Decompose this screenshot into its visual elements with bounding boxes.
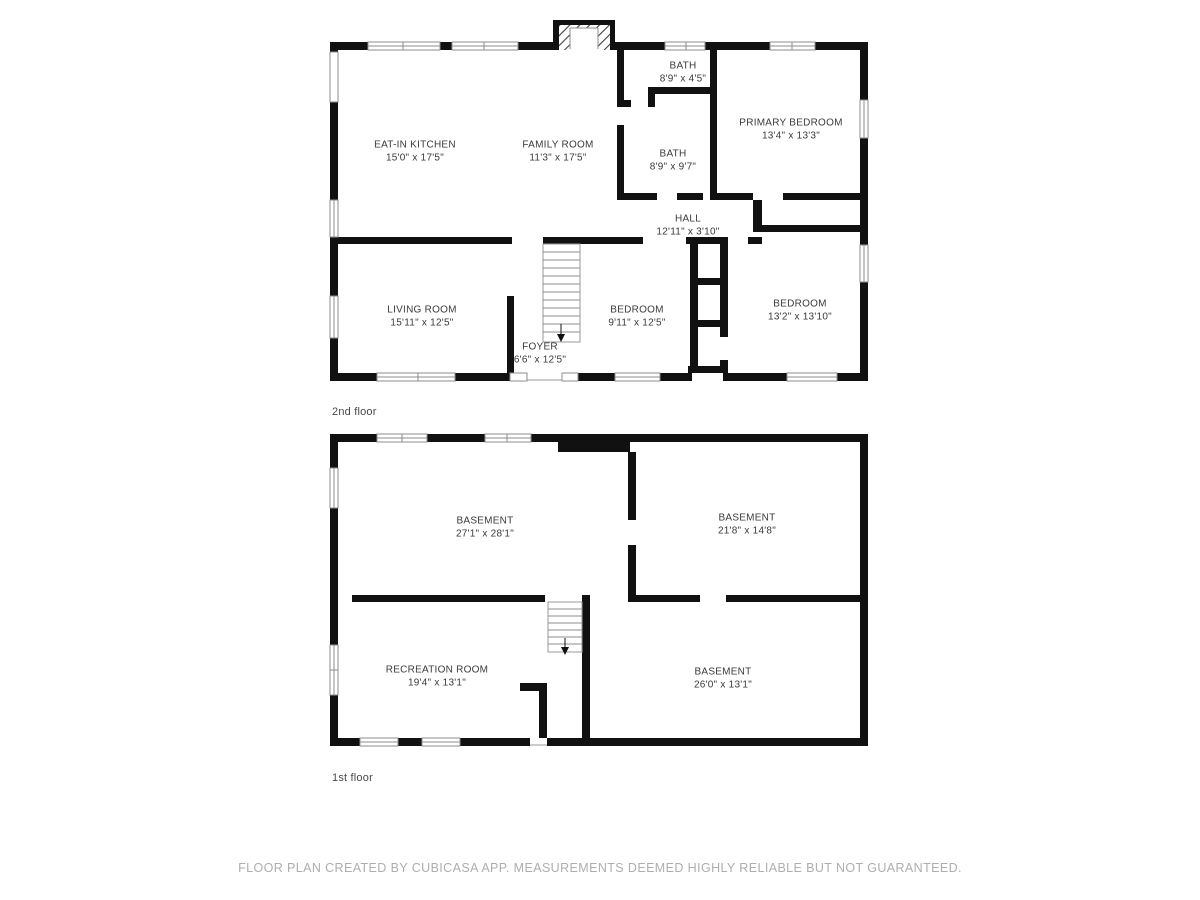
- room-dimensions: 15'0" x 17'5": [374, 152, 456, 165]
- room-label-foyer: FOYER6'6" x 12'5": [514, 342, 566, 367]
- room-label-recreation-room: RECREATION ROOM19'4" x 13'1": [386, 665, 488, 690]
- room-name: EAT-IN KITCHEN: [374, 140, 456, 153]
- staircase-lower: [548, 602, 582, 655]
- fireplace-chimney: [553, 20, 615, 50]
- room-dimensions: 13'2" x 13'10": [768, 311, 832, 324]
- room-label-bedroom: BEDROOM13'2" x 13'10": [768, 299, 832, 324]
- floor-2-label: 2nd floor: [332, 406, 377, 418]
- room-name: FAMILY ROOM: [522, 140, 593, 153]
- room-name: BASEMENT: [694, 667, 752, 680]
- room-name: BASEMENT: [718, 513, 776, 526]
- room-dimensions: 15'11" x 12'5": [387, 317, 456, 330]
- room-name: LIVING ROOM: [387, 305, 456, 318]
- room-name: BATH: [660, 61, 706, 74]
- floor-1-exterior-walls: [330, 434, 868, 746]
- nook-door-opening: [530, 738, 547, 746]
- floor-1-interior-walls: [352, 452, 864, 738]
- room-name: BEDROOM: [608, 305, 665, 318]
- room-dimensions: 19'4" x 13'1": [386, 677, 488, 690]
- room-label-basement: BASEMENT21'8" x 14'8": [718, 513, 776, 538]
- disclaimer-text: FLOOR PLAN CREATED BY CUBICASA APP. MEAS…: [0, 861, 1200, 875]
- entry-door-opening: [527, 373, 562, 381]
- room-dimensions: 9'11" x 12'5": [608, 317, 665, 330]
- room-label-basement: BASEMENT27'1" x 28'1": [456, 516, 514, 541]
- floor-1-window-mullions: [330, 434, 531, 742]
- floor-plan-canvas: EAT-IN KITCHEN15'0" x 17'5"FAMILY ROOM11…: [0, 0, 1200, 900]
- room-dimensions: 26'0" x 13'1": [694, 679, 752, 692]
- floor-1-plan: [330, 434, 868, 746]
- room-name: BATH: [650, 149, 696, 162]
- wall-jog-gap: [692, 373, 723, 381]
- staircase-upper: [543, 244, 580, 342]
- room-dimensions: 8'9" x 9'7": [650, 161, 696, 174]
- room-label-eat-in-kitchen: EAT-IN KITCHEN15'0" x 17'5": [374, 140, 456, 165]
- floor-2-window-mullions: [334, 42, 864, 381]
- floor-1-label: 1st floor: [332, 772, 373, 784]
- room-name: RECREATION ROOM: [386, 665, 488, 678]
- room-dimensions: 11'3" x 17'5": [522, 152, 593, 165]
- room-dimensions: 13'4" x 13'3": [739, 130, 842, 143]
- room-name: FOYER: [514, 342, 566, 355]
- floor-2-windows: [330, 42, 868, 381]
- room-label-bath: BATH8'9" x 4'5": [660, 61, 706, 86]
- room-name: PRIMARY BEDROOM: [739, 118, 842, 131]
- room-dimensions: 21'8" x 14'8": [718, 525, 776, 538]
- room-label-primary-bedroom: PRIMARY BEDROOM13'4" x 13'3": [739, 118, 842, 143]
- room-name: BEDROOM: [768, 299, 832, 312]
- room-name: BASEMENT: [456, 516, 514, 529]
- room-label-bedroom: BEDROOM9'11" x 12'5": [608, 305, 665, 330]
- room-dimensions: 27'1" x 28'1": [456, 528, 514, 541]
- room-dimensions: 8'9" x 4'5": [660, 73, 706, 86]
- room-dimensions: 12'11" x 3'10": [656, 226, 719, 239]
- room-label-living-room: LIVING ROOM15'11" x 12'5": [387, 305, 456, 330]
- room-label-bath: BATH8'9" x 9'7": [650, 149, 696, 174]
- room-label-basement: BASEMENT26'0" x 13'1": [694, 667, 752, 692]
- room-label-family-room: FAMILY ROOM11'3" x 17'5": [522, 140, 593, 165]
- room-name: HALL: [656, 214, 719, 227]
- floor-2-exterior-walls: [330, 42, 868, 381]
- chimney-mass: [558, 434, 630, 452]
- floor-1-windows: [330, 434, 531, 746]
- room-label-hall: HALL12'11" x 3'10": [656, 214, 719, 239]
- room-dimensions: 6'6" x 12'5": [514, 354, 566, 367]
- floor-plan-drawing: [0, 0, 1200, 900]
